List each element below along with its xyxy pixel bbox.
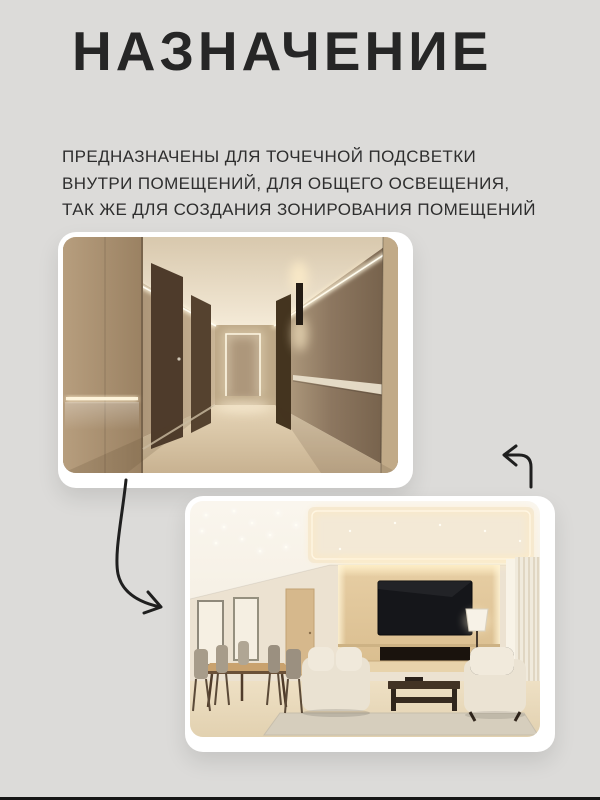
hook-arrow-up-left-icon <box>496 442 542 490</box>
promo-slide: НАЗНАЧЕНИЕ ПРЕДНАЗНАЧЕНЫ ДЛЯ ТОЧЕЧНОЙ ПО… <box>0 0 600 800</box>
corridor-photo-card <box>58 232 413 488</box>
living-room-photo <box>190 501 540 737</box>
subtitle: ПРЕДНАЗНАЧЕНЫ ДЛЯ ТОЧЕЧНОЙ ПОДСВЕТКИ ВНУ… <box>62 144 536 224</box>
subtitle-line-3: ТАК ЖЕ ДЛЯ СОЗДАНИЯ ЗОНИРОВАНИЯ ПОМЕЩЕНИ… <box>62 197 536 224</box>
subtitle-line-1: ПРЕДНАЗНАЧЕНЫ ДЛЯ ТОЧЕЧНОЙ ПОДСВЕТКИ <box>62 144 536 171</box>
living-room-photo-card <box>185 496 555 752</box>
corridor-photo <box>63 237 398 473</box>
page-title: НАЗНАЧЕНИЕ <box>72 24 492 79</box>
subtitle-line-2: ВНУТРИ ПОМЕЩЕНИЙ, ДЛЯ ОБЩЕГО ОСВЕЩЕНИЯ, <box>62 171 536 198</box>
curved-arrow-down-icon <box>103 476 175 616</box>
